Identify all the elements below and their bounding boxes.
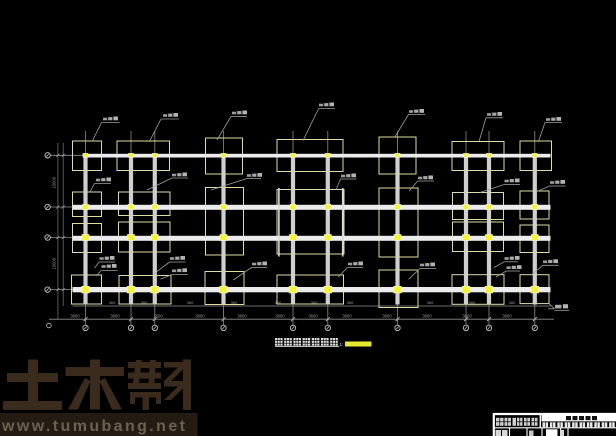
svg-text:3600: 3600 [195, 314, 205, 319]
svg-text:3600: 3600 [422, 314, 432, 319]
svg-text:3600: 3600 [462, 314, 472, 319]
svg-text:360: 360 [509, 300, 516, 305]
svg-text:3600: 3600 [275, 314, 285, 319]
svg-text:360: 360 [187, 300, 194, 305]
svg-text:15000: 15000 [52, 176, 57, 188]
svg-text:360: 360 [109, 300, 116, 305]
svg-text:360: 360 [347, 300, 354, 305]
svg-text:3600: 3600 [110, 314, 120, 319]
svg-text:3600: 3600 [70, 314, 80, 319]
svg-text:1:: 1: [340, 342, 344, 347]
svg-text:3600: 3600 [382, 314, 392, 319]
svg-text:3600: 3600 [308, 314, 318, 319]
svg-text:360: 360 [427, 300, 434, 305]
svg-text:3600: 3600 [342, 314, 352, 319]
svg-text:3600: 3600 [502, 314, 512, 319]
svg-text:15000: 15000 [52, 257, 57, 269]
svg-text:3600: 3600 [237, 314, 247, 319]
svg-text:www.tumubang.net: www.tumubang.net [1, 418, 187, 435]
svg-text:3600: 3600 [153, 314, 163, 319]
